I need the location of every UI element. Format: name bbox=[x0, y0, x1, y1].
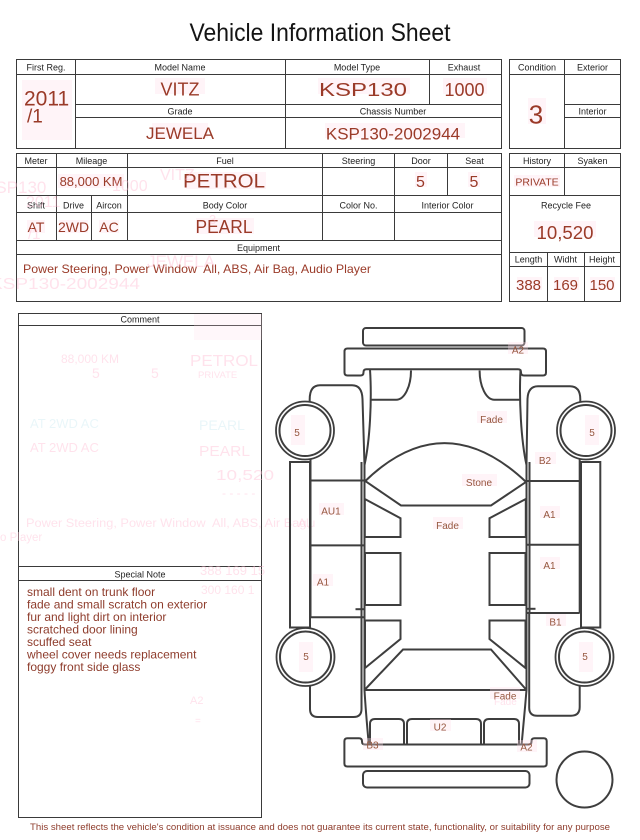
svg-text:Fade: Fade bbox=[494, 697, 517, 708]
svg-text:PEARL: PEARL bbox=[199, 417, 245, 433]
svg-text:VITZ: VITZ bbox=[161, 80, 200, 100]
svg-text:AT 2WD AC: AT 2WD AC bbox=[30, 416, 99, 431]
svg-text:5: 5 bbox=[92, 365, 100, 381]
svg-text:Alu: Alu bbox=[298, 516, 315, 530]
svg-text:Interior Color: Interior Color bbox=[421, 201, 473, 211]
svg-text:Length: Length bbox=[515, 255, 543, 265]
svg-text:Door: Door bbox=[411, 156, 431, 166]
svg-text:388: 388 bbox=[516, 277, 541, 294]
svg-text:KSP130-2002944: KSP130-2002944 bbox=[326, 125, 460, 144]
svg-text:B2: B2 bbox=[539, 456, 552, 467]
svg-text:150: 150 bbox=[589, 277, 614, 294]
svg-text:PRIVATE: PRIVATE bbox=[198, 370, 237, 381]
svg-text:PEARL: PEARL bbox=[199, 443, 250, 460]
svg-text:Comment: Comment bbox=[120, 315, 160, 325]
svg-text:/1: /1 bbox=[27, 107, 43, 128]
svg-text:10,520: 10,520 bbox=[537, 223, 594, 243]
svg-text:Recycle Fee: Recycle Fee bbox=[541, 201, 591, 211]
svg-text:Exterior: Exterior bbox=[577, 63, 608, 73]
svg-text:PETROL: PETROL bbox=[190, 353, 258, 370]
svg-text:Steering: Steering bbox=[342, 156, 376, 166]
svg-text:Grade: Grade bbox=[167, 107, 192, 117]
svg-text:- - - - -: - - - - - bbox=[222, 486, 255, 500]
svg-text:5: 5 bbox=[589, 428, 595, 439]
svg-text:2011: 2011 bbox=[26, 194, 61, 211]
svg-text:Power Steering, Power Window: Power Steering, Power Window All, ABS, A… bbox=[26, 518, 310, 530]
svg-text:5: 5 bbox=[303, 652, 309, 663]
svg-text:1000: 1000 bbox=[112, 178, 148, 195]
svg-text:Vehicle Information Sheet: Vehicle Information Sheet bbox=[190, 19, 451, 47]
svg-text:Syaken: Syaken bbox=[577, 156, 607, 166]
svg-text:Equipment: Equipment bbox=[237, 243, 281, 253]
svg-text:1000: 1000 bbox=[444, 80, 484, 100]
svg-text:/1: /1 bbox=[28, 226, 41, 243]
svg-text:Seat: Seat bbox=[465, 156, 484, 166]
svg-text:B1: B1 bbox=[549, 618, 562, 629]
svg-text:Condition: Condition bbox=[518, 63, 556, 73]
svg-text:Body Color: Body Color bbox=[203, 201, 248, 211]
svg-text:AU1: AU1 bbox=[321, 507, 341, 518]
svg-text:AT 2WD AC: AT 2WD AC bbox=[30, 440, 99, 455]
svg-text:This sheet reflects the vehicl: This sheet reflects the vehicle's condit… bbox=[30, 822, 610, 832]
svg-text:foggy front side glass: foggy front side glass bbox=[27, 660, 140, 674]
svg-text:A1: A1 bbox=[543, 510, 556, 521]
svg-text:Fuel: Fuel bbox=[216, 156, 234, 166]
svg-text:Interior: Interior bbox=[578, 107, 606, 117]
svg-text:A1: A1 bbox=[317, 578, 330, 589]
svg-text:A2: A2 bbox=[190, 695, 203, 707]
svg-text:Widht: Widht bbox=[554, 255, 578, 265]
svg-text:5: 5 bbox=[416, 174, 425, 191]
svg-text:Aircon: Aircon bbox=[96, 201, 122, 211]
svg-text:3: 3 bbox=[529, 100, 543, 130]
svg-text:Color No.: Color No. bbox=[339, 201, 377, 211]
svg-text:First Reg.: First Reg. bbox=[26, 63, 65, 73]
svg-text:A2: A2 bbox=[512, 346, 525, 357]
svg-text:VITZ: VITZ bbox=[160, 167, 195, 184]
svg-text:KSP130-2002944: KSP130-2002944 bbox=[0, 276, 140, 293]
svg-text:3: 3 bbox=[209, 212, 216, 227]
svg-text:JEWELA: JEWELA bbox=[146, 124, 215, 143]
svg-text:History: History bbox=[523, 156, 552, 166]
svg-text:U2: U2 bbox=[434, 723, 447, 734]
svg-text:=: = bbox=[195, 716, 201, 727]
svg-text:B3: B3 bbox=[366, 741, 379, 752]
svg-text:Fade: Fade bbox=[436, 521, 459, 532]
svg-text:Model Name: Model Name bbox=[154, 63, 205, 73]
svg-text:Height: Height bbox=[589, 255, 616, 265]
svg-text:2WD: 2WD bbox=[58, 219, 89, 235]
svg-text:88,000 KM: 88,000 KM bbox=[61, 352, 119, 366]
svg-text:KSP130: KSP130 bbox=[319, 80, 407, 100]
svg-text:Fade: Fade bbox=[480, 415, 503, 426]
svg-text:5: 5 bbox=[151, 365, 159, 381]
svg-text:Exhaust: Exhaust bbox=[448, 63, 481, 73]
svg-text:Drive: Drive bbox=[63, 201, 84, 211]
svg-text:169: 169 bbox=[553, 277, 578, 294]
svg-text:A1: A1 bbox=[543, 561, 556, 572]
svg-text:388 169 15: 388 169 15 bbox=[200, 563, 265, 578]
svg-text:Mileage: Mileage bbox=[76, 156, 108, 166]
svg-text:PEARL: PEARL bbox=[196, 217, 253, 237]
svg-text:AC: AC bbox=[99, 219, 118, 235]
svg-text:JEWELA: JEWELA bbox=[147, 252, 216, 271]
svg-text:Chassis Number: Chassis Number bbox=[360, 107, 427, 117]
svg-text:Stone: Stone bbox=[466, 478, 493, 489]
svg-text:PETROL: PETROL bbox=[183, 172, 265, 193]
svg-text:5: 5 bbox=[582, 652, 588, 663]
svg-text:PRIVATE: PRIVATE bbox=[515, 177, 558, 189]
svg-text:5: 5 bbox=[294, 428, 300, 439]
svg-text:A2: A2 bbox=[520, 743, 533, 754]
svg-text:o Player: o Player bbox=[0, 532, 42, 544]
svg-text:Model Type: Model Type bbox=[334, 63, 380, 73]
svg-text:Meter: Meter bbox=[24, 156, 47, 166]
svg-text:Special Note: Special Note bbox=[114, 570, 165, 580]
svg-text:5: 5 bbox=[470, 174, 479, 191]
svg-text:300 160 1: 300 160 1 bbox=[201, 583, 255, 597]
svg-text:10,520: 10,520 bbox=[216, 467, 274, 484]
